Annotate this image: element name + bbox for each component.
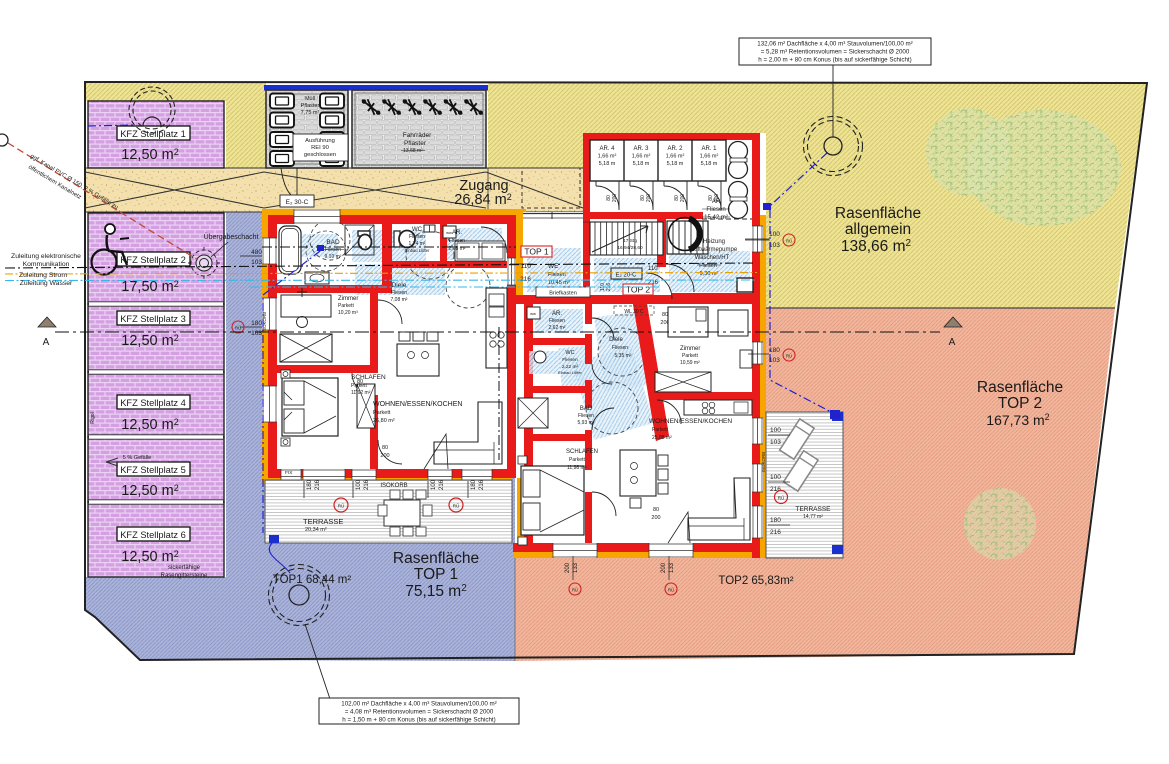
svg-text:180: 180 — [251, 320, 262, 327]
svg-text:FIX: FIX — [285, 470, 293, 476]
svg-text:Rasenfläche: Rasenfläche — [393, 550, 479, 567]
svg-text:16,94/28,60: 16,94/28,60 — [617, 245, 643, 251]
svg-text:75,15 m2: 75,15 m2 — [405, 583, 467, 600]
svg-text:ISOKORB: ISOKORB — [380, 483, 407, 489]
svg-text:103: 103 — [251, 330, 262, 337]
svg-text:138,66 m2: 138,66 m2 — [841, 238, 912, 255]
svg-text:Übergabeschacht: Übergabeschacht — [204, 233, 259, 241]
svg-text:9,10 m²: 9,10 m² — [325, 254, 342, 260]
svg-text:200: 200 — [661, 562, 667, 573]
svg-text:KFZ Stellplatz 1: KFZ Stellplatz 1 — [120, 129, 186, 139]
svg-text:Fliesen: Fliesen — [449, 238, 465, 244]
svg-text:TOP 1: TOP 1 — [414, 566, 458, 583]
svg-text:Fliesen: Fliesen — [706, 207, 725, 213]
svg-text:1,66 m²: 1,66 m² — [666, 154, 685, 160]
svg-text:25,88 m²: 25,88 m² — [652, 435, 672, 441]
svg-text:WC: WC — [412, 227, 423, 233]
svg-text:AR. 1: AR. 1 — [701, 146, 717, 152]
svg-text:h = 2,00 m + 80 cm Konus (bis: h = 2,00 m + 80 cm Konus (bis auf sicker… — [758, 57, 911, 64]
svg-text:Parkett: Parkett — [373, 410, 391, 416]
svg-text:SCHLAFEN: SCHLAFEN — [351, 374, 386, 381]
svg-text:ww: ww — [530, 311, 536, 316]
svg-text:5,18 m: 5,18 m — [701, 161, 718, 167]
svg-text:Parkett: Parkett — [652, 427, 668, 433]
svg-text:A: A — [949, 337, 956, 348]
svg-text:Rasenfläche: Rasenfläche — [835, 205, 921, 222]
svg-text:Zuleitung elektronische: Zuleitung elektronische — [11, 253, 81, 260]
svg-text:Heizung: Heizung — [703, 239, 725, 245]
svg-text:RÜ: RÜ — [338, 503, 345, 509]
svg-text:103: 103 — [769, 242, 780, 249]
svg-text:110: 110 — [648, 266, 658, 272]
svg-text:BAD: BAD — [580, 406, 593, 412]
svg-text:13,68 m²: 13,68 m² — [403, 148, 423, 154]
svg-text:E₂ 20-C: E₂ 20-C — [615, 273, 637, 279]
svg-text:1,74 m²: 1,74 m² — [409, 241, 426, 247]
svg-text:A: A — [43, 337, 50, 348]
svg-text:Einbau Lüfter: Einbau Lüfter — [558, 370, 582, 375]
svg-text:200: 200 — [380, 453, 389, 459]
svg-text:Zuleitung Wasser: Zuleitung Wasser — [20, 280, 73, 287]
svg-text:9,30 m²: 9,30 m² — [700, 271, 719, 277]
svg-text:1,66 m²: 1,66 m² — [632, 154, 651, 160]
svg-text:102,00 m² Dachfläche x 4,00 m³: 102,00 m² Dachfläche x 4,00 m³ Stauvolum… — [341, 701, 496, 708]
svg-text:E₂ 30-C: E₂ 30-C — [286, 199, 309, 206]
svg-text:216: 216 — [439, 479, 445, 490]
svg-text:TOP1 68,44 m²: TOP1 68,44 m² — [273, 574, 352, 586]
svg-text:20,34 m²: 20,34 m² — [305, 527, 327, 533]
svg-text:Fliesen: Fliesen — [612, 345, 628, 351]
svg-text:133: 133 — [669, 562, 675, 573]
svg-text:80: 80 — [382, 445, 388, 451]
svg-text:= 5,28 m³ Retentionsvolumen =: = 5,28 m³ Retentionsvolumen = Sickerscha… — [761, 49, 910, 56]
svg-text:7,75 m²: 7,75 m² — [301, 110, 320, 116]
svg-text:80: 80 — [653, 507, 659, 513]
svg-text:sickerfähige: sickerfähige — [168, 565, 201, 571]
svg-text:Zimmer: Zimmer — [680, 346, 700, 352]
svg-text:TOP 2: TOP 2 — [626, 285, 651, 295]
svg-text:Fliesen: Fliesen — [578, 413, 594, 419]
svg-text:Diele: Diele — [609, 337, 623, 343]
svg-text:BAD: BAD — [326, 239, 340, 246]
svg-text:Waschen/HT: Waschen/HT — [695, 255, 730, 261]
svg-text:Fliesen: Fliesen — [699, 263, 717, 269]
svg-text:WC: WC — [565, 350, 574, 356]
svg-text:Pflaster: Pflaster — [301, 103, 320, 109]
svg-text:Zuleitung Strom: Zuleitung Strom — [19, 272, 67, 279]
svg-text:5 % Gefälle: 5 % Gefälle — [123, 455, 151, 461]
svg-text:Briefkasten: Briefkasten — [549, 291, 577, 297]
svg-text:TERRASSE: TERRASSE — [795, 506, 831, 513]
svg-text:100: 100 — [769, 231, 780, 238]
svg-text:TERRASSE: TERRASSE — [303, 517, 343, 526]
svg-text:Parkett: Parkett — [682, 353, 698, 359]
svg-text:REI 90: REI 90 — [311, 145, 329, 151]
svg-text:216: 216 — [770, 486, 781, 493]
svg-text:12,50 m2: 12,50 m2 — [121, 549, 178, 565]
svg-text:RÜ: RÜ — [786, 239, 792, 244]
svg-text:80: 80 — [662, 312, 668, 318]
svg-text:180: 180 — [769, 347, 780, 354]
svg-text:17,50 m2: 17,50 m2 — [121, 279, 178, 295]
svg-text:h = 1,50 m + 80 cm Konus (bis: h = 1,50 m + 80 cm Konus (bis auf sicker… — [342, 717, 495, 724]
svg-text:Zimmer: Zimmer — [338, 296, 358, 302]
svg-text:Fliesen: Fliesen — [409, 234, 425, 240]
svg-text:200: 200 — [612, 194, 618, 203]
svg-text:10,59 m²: 10,59 m² — [680, 360, 700, 366]
svg-text:Diele: Diele — [392, 282, 407, 289]
svg-text:allgemein: allgemein — [845, 221, 911, 238]
svg-text:RÜ: RÜ — [235, 326, 241, 331]
svg-text:Fliesen: Fliesen — [391, 290, 407, 296]
svg-text:AR: AR — [712, 199, 721, 205]
svg-text:216: 216 — [315, 479, 321, 490]
svg-text:167,73 m2: 167,73 m2 — [986, 412, 1049, 428]
svg-text:132,06 m² Dachfläche x 4,00 m³: 132,06 m² Dachfläche x 4,00 m³ Stauvolum… — [757, 41, 912, 48]
svg-text:Pflaster: Pflaster — [404, 140, 427, 147]
svg-text:Fliesen: Fliesen — [325, 247, 341, 253]
svg-text:Müll: Müll — [305, 96, 315, 102]
svg-text:Einbau Lüfter: Einbau Lüfter — [405, 248, 431, 253]
svg-text:103: 103 — [769, 357, 780, 364]
svg-text:Fahrräder: Fahrräder — [403, 132, 432, 139]
svg-text:WL 30 C: WL 30 C — [624, 309, 644, 315]
svg-text:216: 216 — [364, 479, 370, 490]
svg-text:180: 180 — [471, 479, 477, 490]
svg-text:KFZ Stellplatz 5: KFZ Stellplatz 5 — [120, 465, 186, 475]
svg-text:Rasengittersteine: Rasengittersteine — [161, 573, 208, 579]
svg-text:Kommunikation: Kommunikation — [23, 261, 70, 268]
svg-text:480: 480 — [251, 249, 262, 256]
svg-text:Parkett: Parkett — [569, 457, 585, 463]
svg-text:RÜ: RÜ — [453, 503, 460, 509]
svg-text:11,98 m³: 11,98 m³ — [567, 465, 587, 471]
svg-text:Fliesen: Fliesen — [549, 318, 565, 324]
svg-text:ISOKORB: ISOKORB — [761, 452, 766, 473]
svg-text:KFZ Stellplatz 4: KFZ Stellplatz 4 — [120, 398, 186, 408]
svg-text:WOHNEN/ESSEN/KOCHEN: WOHNEN/ESSEN/KOCHEN — [373, 401, 462, 408]
svg-text:1,66 m²: 1,66 m² — [598, 154, 617, 160]
svg-text:AR.: AR. — [452, 230, 462, 236]
svg-text:geschlossen: geschlossen — [304, 152, 336, 158]
svg-text:= 4,08 m³ Retentionsvolumen =: = 4,08 m³ Retentionsvolumen = Sickerscha… — [345, 709, 494, 716]
svg-text:12,50 m2: 12,50 m2 — [121, 417, 178, 433]
svg-text:5,18 m: 5,18 m — [599, 161, 616, 167]
svg-text:Rasenfläche: Rasenfläche — [977, 379, 1063, 396]
svg-text:100: 100 — [770, 427, 781, 434]
svg-text:17 Stg: 17 Stg — [623, 238, 637, 244]
svg-text:TOP 2: TOP 2 — [998, 395, 1042, 412]
svg-text:RÜ: RÜ — [668, 588, 674, 593]
svg-text:216: 216 — [770, 529, 781, 536]
svg-text:WOHNEN/ESSEN/KOCHEN: WOHNEN/ESSEN/KOCHEN — [649, 418, 732, 425]
svg-text:103: 103 — [770, 439, 781, 446]
svg-text:Parkett: Parkett — [351, 383, 367, 389]
svg-text:RÜ: RÜ — [778, 495, 785, 501]
svg-text:26,80 m²: 26,80 m² — [373, 418, 395, 424]
svg-text:Ausführung: Ausführung — [305, 138, 335, 144]
svg-text:1,66 m²: 1,66 m² — [700, 154, 719, 160]
svg-text:12,50 m2: 12,50 m2 — [121, 147, 178, 163]
svg-text:TOP 1: TOP 1 — [524, 247, 549, 257]
svg-text:103: 103 — [251, 259, 262, 266]
svg-text:KFZ Stellplatz 6: KFZ Stellplatz 6 — [120, 530, 186, 540]
svg-text:200: 200 — [680, 194, 686, 203]
svg-text:RÜ: RÜ — [786, 354, 792, 359]
svg-text:7,08 m²: 7,08 m² — [391, 297, 408, 303]
svg-text:2,62 m²: 2,62 m² — [549, 325, 566, 331]
svg-text:Luftwärmepumpe: Luftwärmepumpe — [691, 247, 738, 253]
svg-text:100: 100 — [770, 474, 781, 481]
svg-text:12,50 m2: 12,50 m2 — [121, 483, 178, 499]
svg-text:200: 200 — [646, 194, 652, 203]
svg-text:133: 133 — [573, 562, 579, 573]
svg-text:15,42 m²: 15,42 m² — [704, 215, 728, 221]
svg-text:100: 100 — [356, 479, 362, 490]
svg-text:216: 216 — [479, 479, 485, 490]
svg-text:SCHLAFEN: SCHLAFEN — [566, 449, 598, 455]
svg-text:200: 200 — [651, 515, 660, 521]
svg-text:Parkett: Parkett — [338, 303, 354, 309]
svg-text:Rigol: Rigol — [90, 412, 96, 423]
svg-text:AR.: AR. — [552, 311, 562, 317]
svg-text:Fliesen: Fliesen — [562, 357, 578, 363]
svg-text:RÜ: RÜ — [572, 588, 578, 593]
svg-text:200: 200 — [565, 562, 571, 573]
svg-text:12,50 m2: 12,50 m2 — [121, 333, 178, 349]
svg-text:100: 100 — [431, 479, 437, 490]
svg-text:11,92 m²: 11,92 m² — [351, 390, 371, 396]
svg-text:216: 216 — [520, 276, 531, 283]
svg-text:5,18 m: 5,18 m — [667, 161, 684, 167]
svg-text:26,84 m2: 26,84 m2 — [454, 192, 511, 208]
svg-text:180: 180 — [770, 517, 781, 524]
svg-text:5,93 m²: 5,93 m² — [578, 420, 595, 426]
svg-text:TOP2 65,83m²: TOP2 65,83m² — [718, 575, 793, 587]
svg-text:14,77 m²: 14,77 m² — [803, 514, 823, 520]
svg-text:KFZ Stellplatz 2: KFZ Stellplatz 2 — [120, 255, 186, 265]
svg-text:KFZ Stellplatz 3: KFZ Stellplatz 3 — [120, 314, 186, 324]
svg-text:5,18 m: 5,18 m — [633, 161, 650, 167]
svg-text:AR. 4: AR. 4 — [599, 146, 615, 152]
svg-text:AR. 2: AR. 2 — [667, 146, 683, 152]
svg-text:AR. 3: AR. 3 — [633, 146, 649, 152]
svg-text:5,35 m²: 5,35 m² — [615, 353, 632, 359]
svg-text:10,20 m³: 10,20 m³ — [338, 310, 358, 316]
svg-text:180: 180 — [307, 479, 313, 490]
svg-text:10,45 m³: 10,45 m³ — [548, 280, 570, 286]
